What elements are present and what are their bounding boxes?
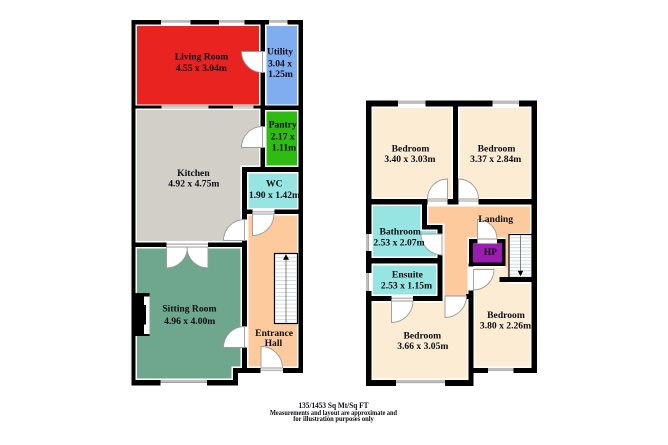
svg-text:Kitchen: Kitchen (177, 168, 210, 179)
svg-text:for illustration purposes only: for illustration purposes only (293, 416, 374, 423)
svg-text:4.55 x 3.04m: 4.55 x 3.04m (176, 63, 227, 74)
svg-text:3.80 x 2.26m: 3.80 x 2.26m (480, 321, 531, 332)
svg-text:2.17 x: 2.17 x (271, 132, 295, 143)
svg-text:2.53 x 1.15m: 2.53 x 1.15m (381, 280, 432, 291)
svg-text:4.96 x 4.00m: 4.96 x 4.00m (164, 316, 215, 327)
svg-text:Bedroom: Bedroom (478, 144, 516, 155)
svg-text:Bedroom: Bedroom (487, 310, 525, 321)
svg-text:Sitting Room: Sitting Room (162, 303, 216, 314)
svg-text:Bedroom: Bedroom (403, 330, 441, 341)
svg-text:Living Room: Living Room (175, 51, 229, 62)
svg-text:3.04 x: 3.04 x (268, 58, 292, 69)
svg-text:3.37 x 2.84m: 3.37 x 2.84m (470, 154, 521, 165)
svg-text:1.11m: 1.11m (272, 142, 296, 153)
svg-text:1.90 x 1.42m: 1.90 x 1.42m (249, 190, 300, 201)
svg-text:3.66 x 3.05m: 3.66 x 3.05m (397, 341, 448, 352)
svg-text:HP: HP (484, 248, 497, 258)
svg-text:Bedroom: Bedroom (392, 144, 430, 155)
svg-text:Ensuite: Ensuite (392, 270, 424, 281)
svg-text:Utility: Utility (267, 46, 293, 57)
svg-text:1.25m: 1.25m (268, 69, 293, 80)
svg-text:WC: WC (266, 179, 283, 190)
svg-text:Pantry: Pantry (269, 119, 297, 130)
svg-text:Hall: Hall (265, 338, 283, 349)
svg-text:Bathroom: Bathroom (379, 227, 420, 238)
svg-text:3.40 x 3.03m: 3.40 x 3.03m (384, 154, 435, 165)
svg-text:135/1453 Sq Mt/Sq FT: 135/1453 Sq Mt/Sq FT (299, 401, 369, 410)
svg-text:2.53 x 2.07m: 2.53 x 2.07m (373, 238, 424, 249)
svg-text:Landing: Landing (478, 214, 513, 225)
svg-text:4.92 x 4.75m: 4.92 x 4.75m (168, 178, 219, 189)
